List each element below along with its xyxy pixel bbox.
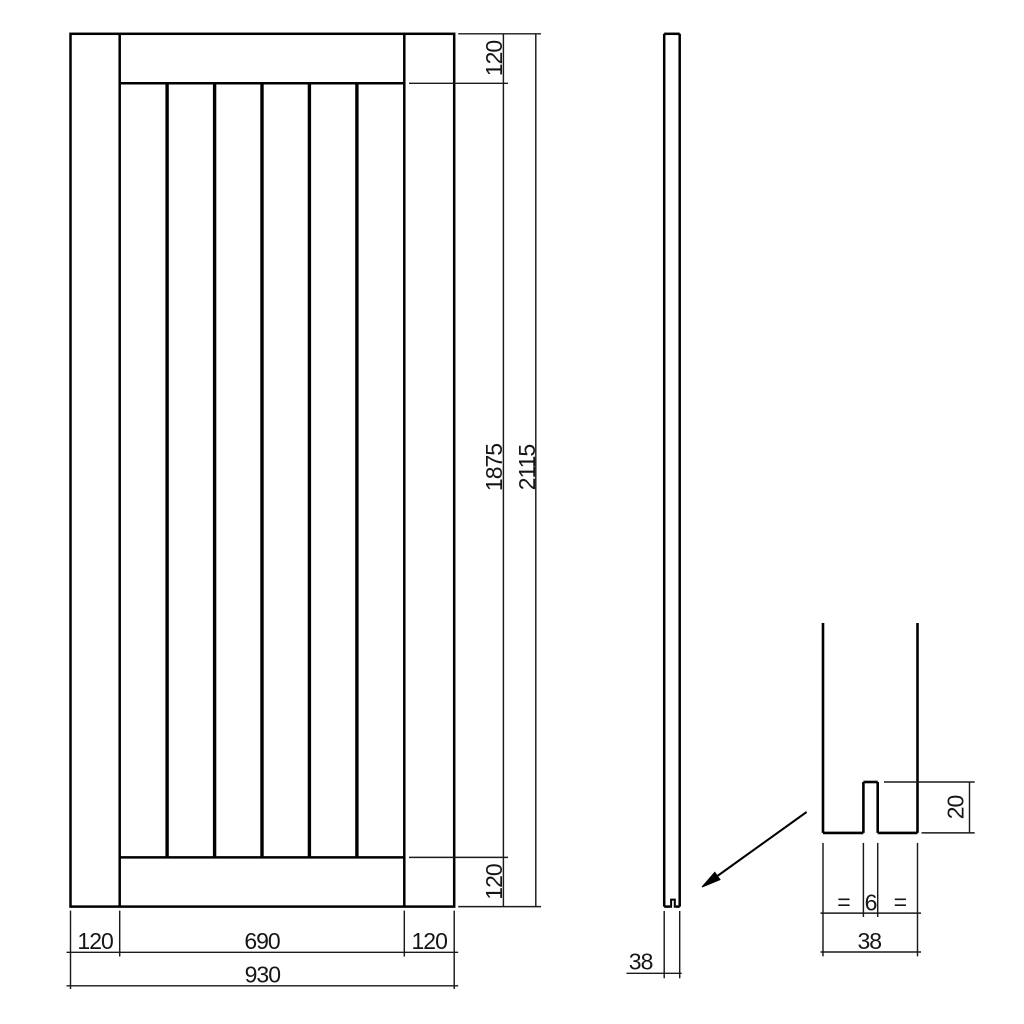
svg-text:=: =: [837, 889, 850, 915]
svg-text:120: 120: [481, 41, 507, 77]
svg-text:120: 120: [77, 928, 113, 954]
svg-text:20: 20: [942, 796, 968, 820]
svg-text:930: 930: [245, 961, 281, 987]
svg-text:38: 38: [629, 949, 653, 975]
svg-text:38: 38: [858, 928, 882, 954]
svg-text:1875: 1875: [481, 444, 507, 491]
svg-text:120: 120: [412, 928, 448, 954]
svg-text:=: =: [894, 889, 907, 915]
svg-text:2115: 2115: [514, 445, 540, 491]
svg-text:6: 6: [865, 889, 877, 915]
svg-text:690: 690: [244, 928, 280, 954]
svg-text:120: 120: [481, 864, 507, 900]
